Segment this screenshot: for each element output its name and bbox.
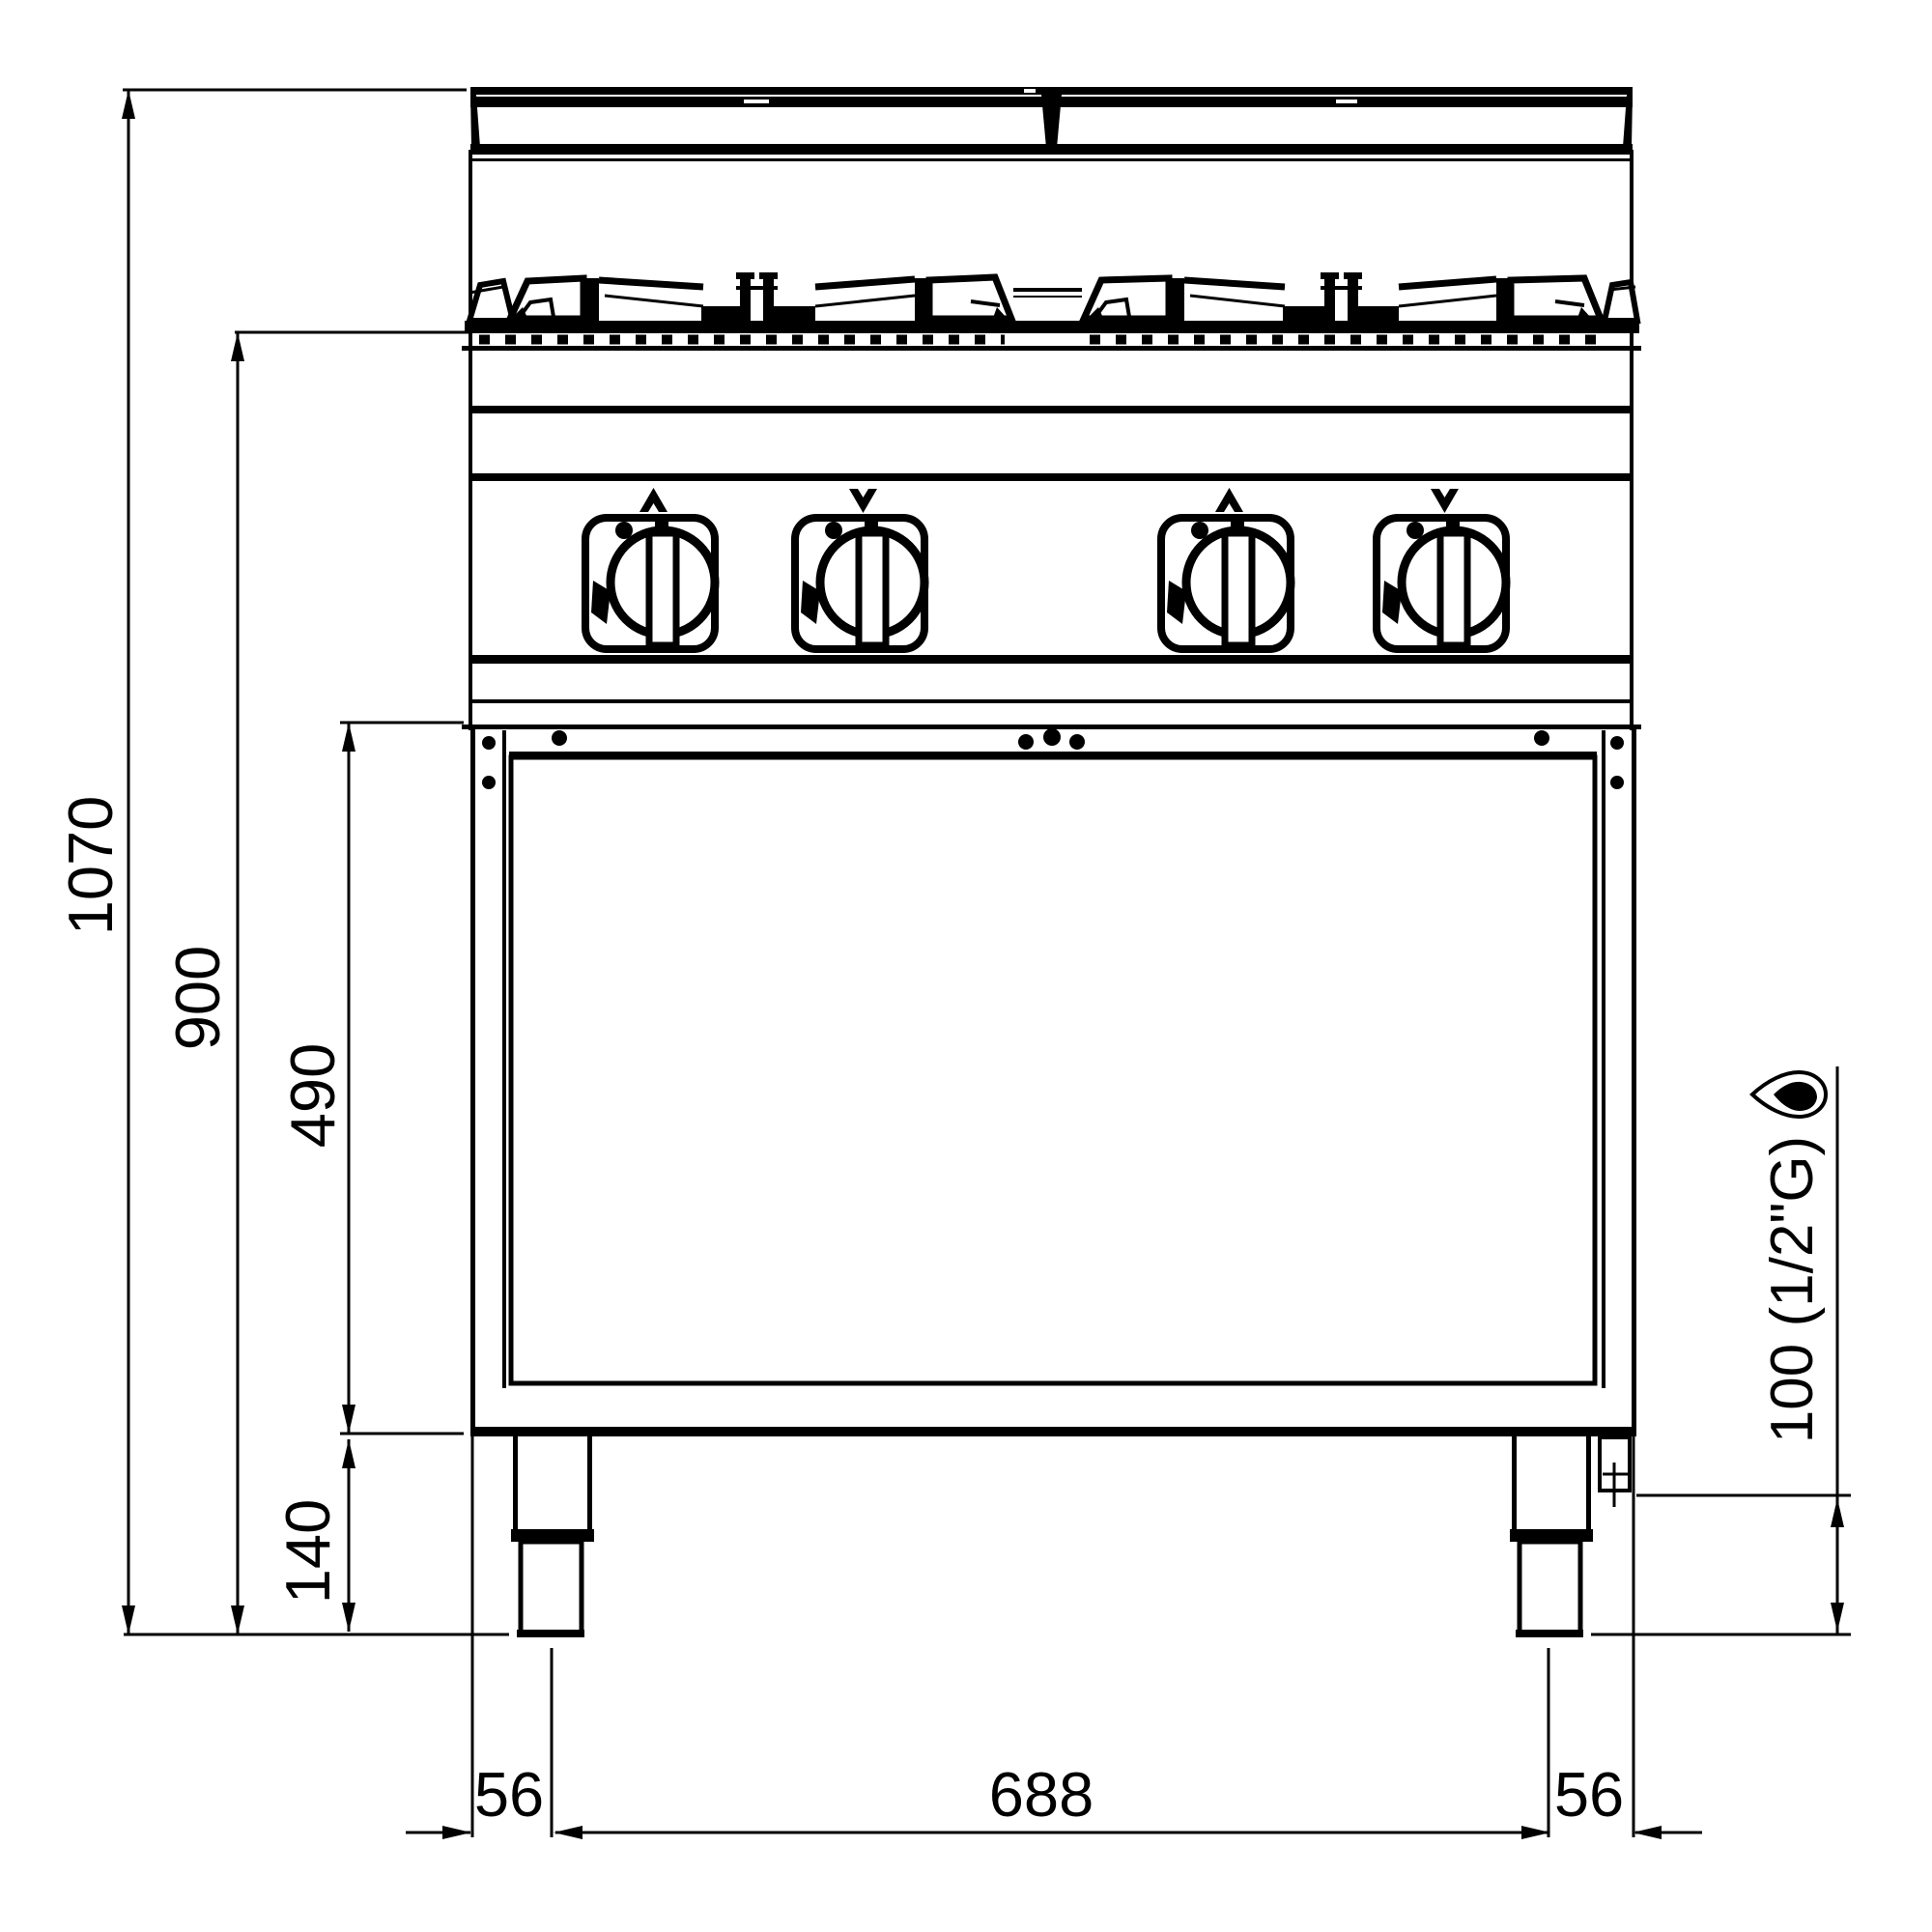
svg-text:490: 490 [277, 1043, 348, 1148]
svg-text:56: 56 [474, 1759, 544, 1830]
svg-text:140: 140 [272, 1499, 343, 1604]
svg-text:100 (1/2"G): 100 (1/2"G) [1759, 1136, 1826, 1443]
svg-text:900: 900 [162, 946, 233, 1050]
svg-text:56: 56 [1554, 1759, 1624, 1830]
svg-text:1070: 1070 [55, 796, 126, 936]
svg-text:688: 688 [989, 1759, 1094, 1830]
